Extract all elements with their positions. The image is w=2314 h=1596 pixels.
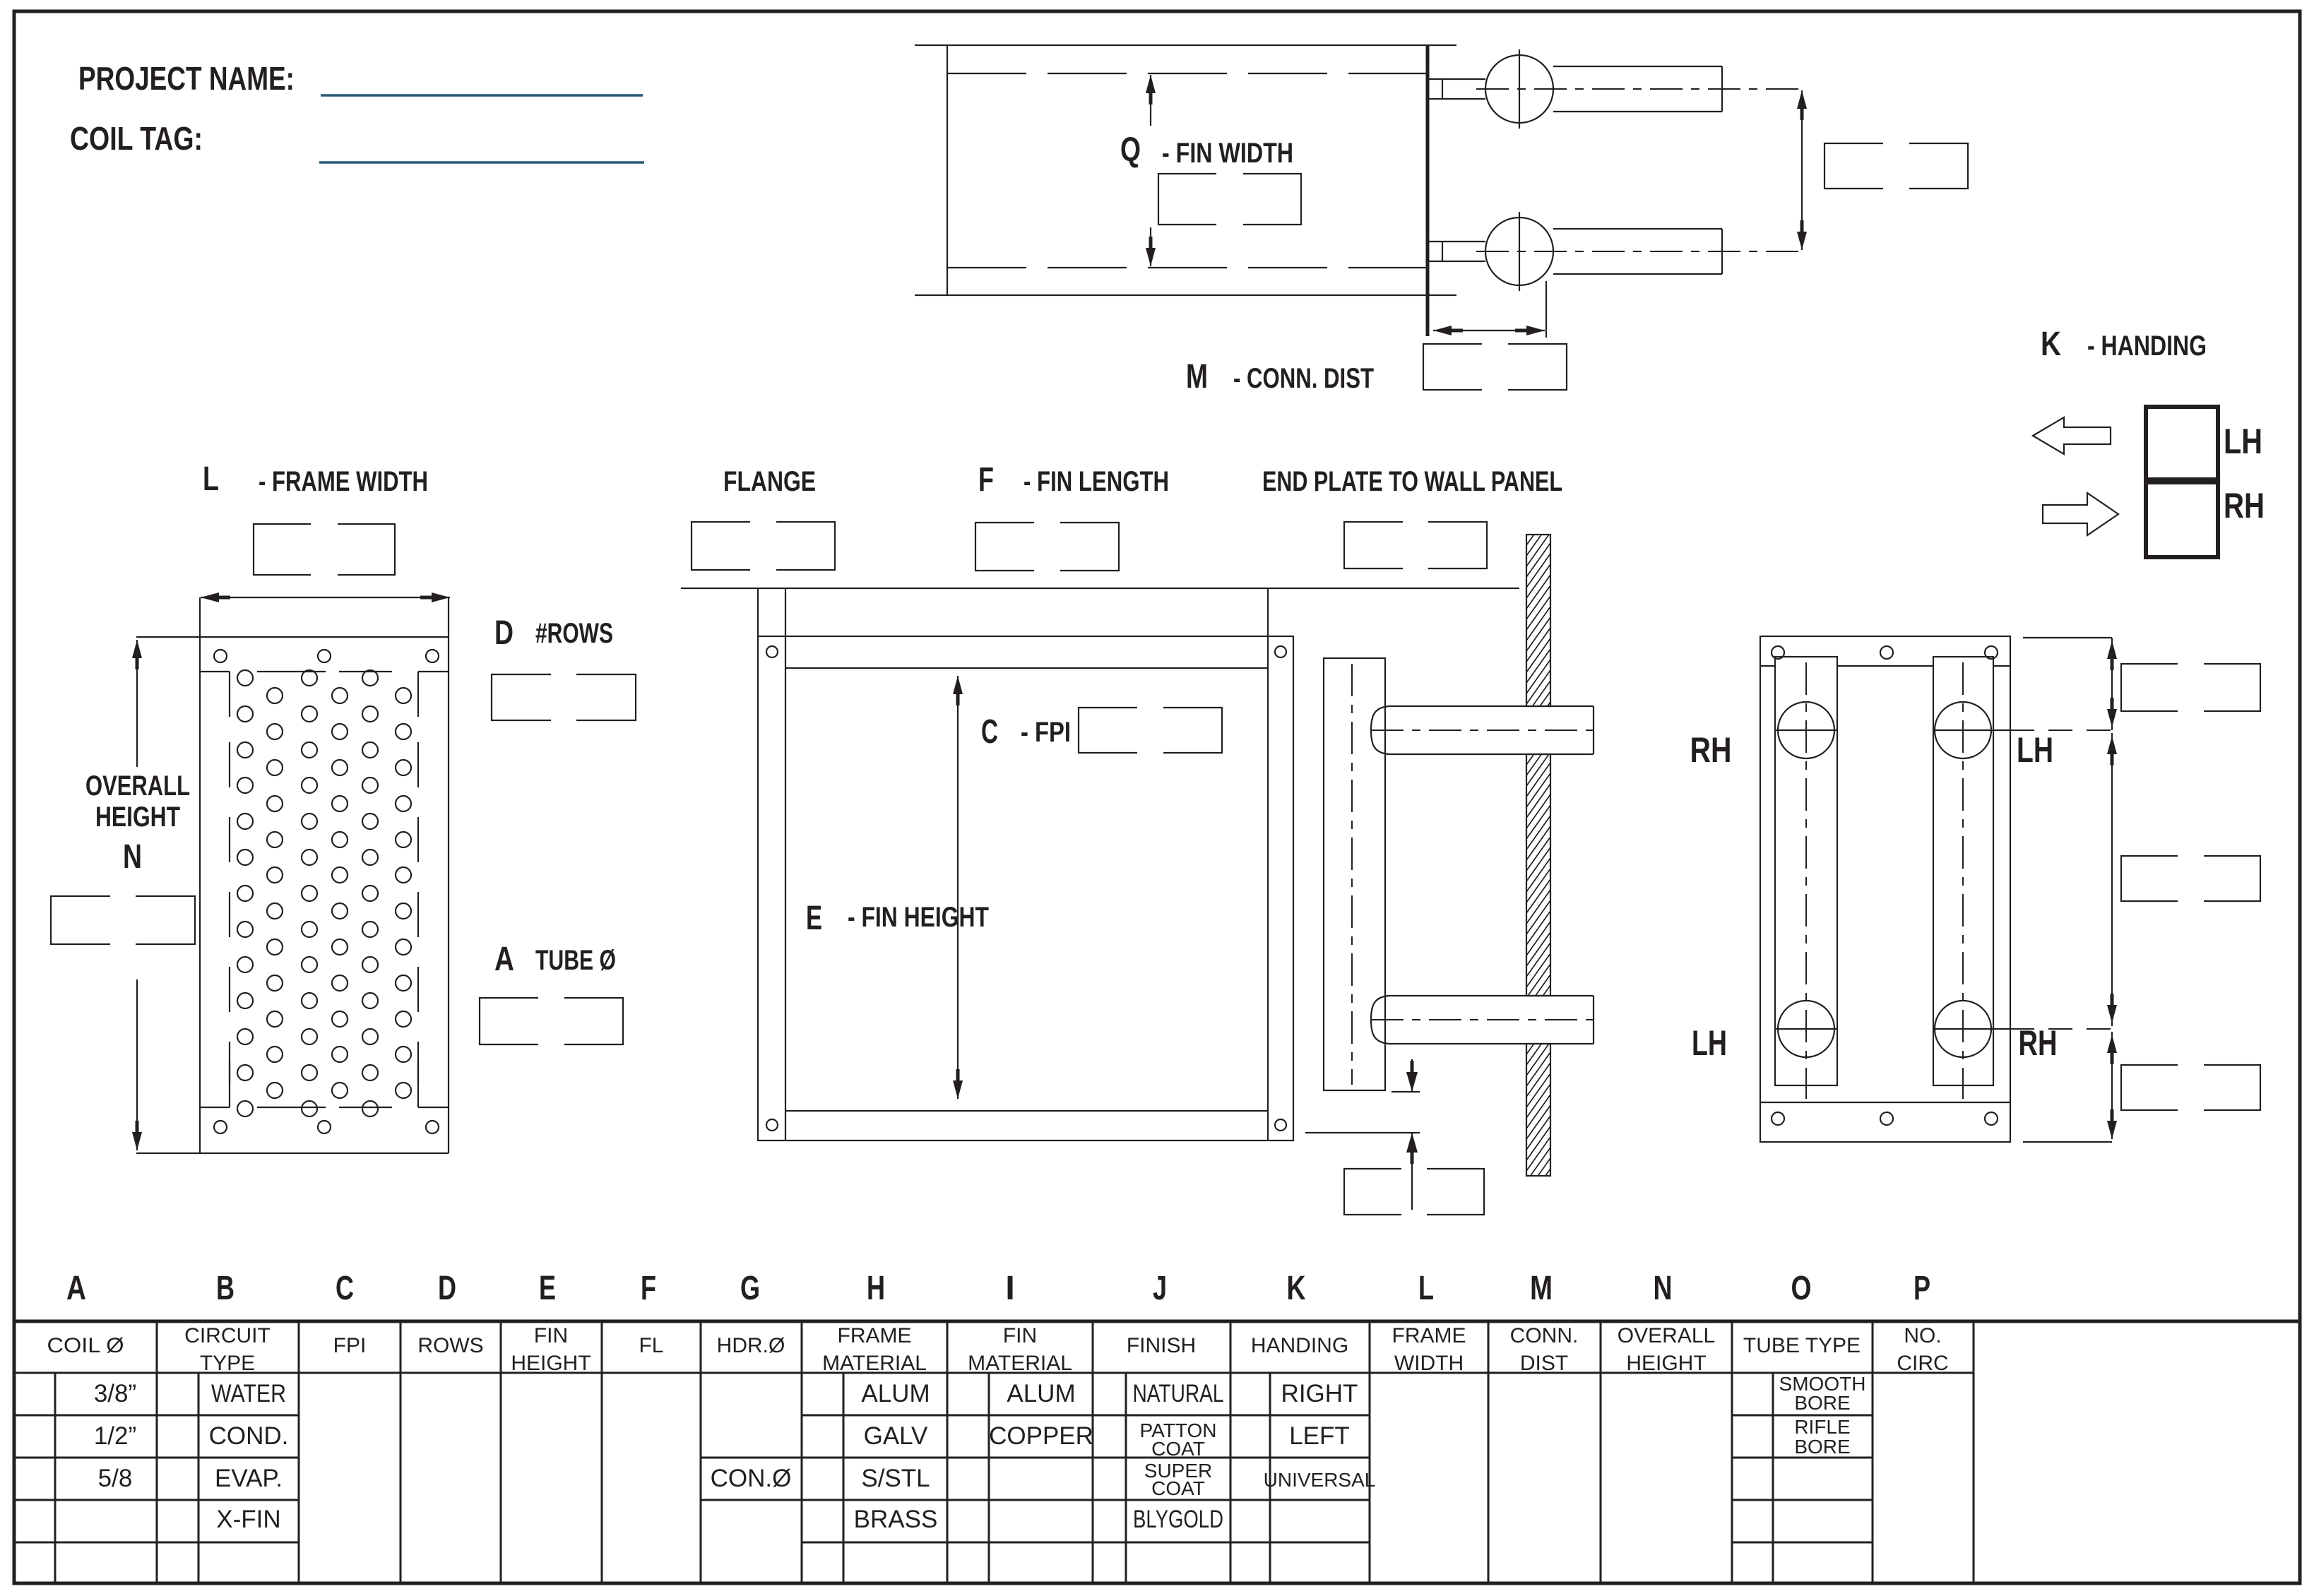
svg-text:COND.: COND. [209,1422,289,1450]
svg-text:- CONN. DIST: - CONN. DIST [1233,363,1374,394]
svg-text:RH: RH [2224,486,2265,525]
svg-text:COIL Ø: COIL Ø [47,1334,124,1357]
svg-text:- FPI: - FPI [1021,717,1071,748]
svg-text:RH: RH [1690,730,1732,770]
svg-text:FPI: FPI [333,1334,367,1357]
svg-text:D: D [438,1270,456,1307]
svg-text:N: N [1654,1270,1673,1307]
svg-text:FRAME: FRAME [1392,1324,1466,1347]
svg-text:- FIN HEIGHT: - FIN HEIGHT [848,902,989,933]
svg-text:P: P [1914,1270,1930,1307]
svg-text:CON.Ø: CON.Ø [711,1465,792,1492]
svg-text:- HANDING: - HANDING [2087,330,2207,362]
svg-text:FIN: FIN [1003,1324,1037,1347]
svg-text:NO.: NO. [1904,1324,1941,1347]
svg-text:C: C [981,713,998,751]
svg-text:ALUM: ALUM [1007,1380,1075,1407]
svg-text:FINISH: FINISH [1127,1334,1196,1357]
svg-text:B: B [216,1270,235,1307]
svg-text:HDR.Ø: HDR.Ø [717,1334,785,1357]
svg-text:A: A [66,1270,86,1307]
svg-text:WIDTH: WIDTH [1394,1352,1464,1375]
svg-text:F: F [978,461,994,499]
svg-text:F: F [641,1270,656,1307]
svg-text:C: C [336,1270,354,1307]
svg-text:EVAP.: EVAP. [215,1465,283,1492]
svg-text:MATERIAL: MATERIAL [822,1352,927,1375]
svg-text:N: N [123,838,142,876]
svg-text:BORE: BORE [1794,1392,1850,1414]
svg-text:BRASS: BRASS [854,1506,938,1533]
svg-text:PROJECT NAME:: PROJECT NAME: [78,60,295,97]
svg-text:FRAME: FRAME [838,1324,912,1347]
svg-text:HANDING: HANDING [1251,1334,1348,1357]
svg-text:- FIN WIDTH: - FIN WIDTH [1162,138,1293,169]
svg-text:L: L [203,460,219,498]
svg-text:GALV: GALV [864,1422,928,1450]
svg-text:WATER: WATER [211,1380,286,1407]
svg-text:K: K [1287,1270,1306,1307]
svg-text:COAT: COAT [1151,1438,1205,1460]
svg-text:LEFT: LEFT [1289,1422,1350,1450]
svg-text:TUBE TYPE: TUBE TYPE [1743,1334,1861,1357]
svg-text:L: L [1418,1270,1434,1307]
svg-text:S/STL: S/STL [861,1465,930,1492]
svg-text:J: J [1153,1270,1167,1307]
svg-text:COAT: COAT [1151,1477,1205,1499]
svg-text:LH: LH [2017,730,2053,770]
svg-text:HEIGHT: HEIGHT [95,802,180,833]
svg-text:OVERALL: OVERALL [85,770,190,802]
svg-text:CIRCUIT: CIRCUIT [184,1324,271,1347]
svg-text:BORE: BORE [1794,1436,1850,1458]
svg-text:K: K [2041,326,2061,363]
svg-text:LH: LH [2224,422,2262,461]
svg-text:END PLATE TO WALL PANEL: END PLATE TO WALL PANEL [1262,466,1562,497]
svg-text:CIRC: CIRC [1897,1352,1948,1375]
svg-text:G: G [740,1270,760,1307]
svg-text:FL: FL [639,1334,663,1357]
svg-text:D: D [494,614,514,652]
svg-text:FLANGE: FLANGE [723,466,816,497]
svg-text:- FIN LENGTH: - FIN LENGTH [1024,466,1169,497]
svg-text:HEIGHT: HEIGHT [511,1352,591,1375]
svg-text:E: E [806,900,822,937]
svg-text:COPPER: COPPER [989,1422,1093,1450]
svg-text:M: M [1530,1270,1553,1307]
svg-text:1/2”: 1/2” [94,1422,136,1450]
svg-text:M: M [1186,358,1208,395]
svg-text:#ROWS: #ROWS [535,618,613,649]
svg-text:CONN.: CONN. [1510,1324,1579,1347]
svg-text:O: O [1791,1270,1812,1307]
svg-text:A: A [494,941,514,978]
svg-text:OVERALL: OVERALL [1618,1324,1715,1347]
svg-text:I: I [1005,1270,1014,1307]
svg-text:NATURAL: NATURAL [1133,1380,1224,1407]
svg-text:5/8: 5/8 [98,1465,133,1492]
svg-text:RIFLE: RIFLE [1794,1416,1850,1438]
svg-text:X-FIN: X-FIN [216,1506,280,1533]
svg-text:TYPE: TYPE [200,1352,255,1375]
svg-text:RIGHT: RIGHT [1281,1380,1358,1407]
svg-text:E: E [539,1270,556,1307]
svg-text:BLYGOLD: BLYGOLD [1133,1506,1223,1533]
svg-text:3/8”: 3/8” [94,1380,136,1407]
svg-text:HEIGHT: HEIGHT [1626,1352,1706,1375]
svg-text:FIN: FIN [534,1324,568,1347]
svg-text:ALUM: ALUM [861,1380,930,1407]
svg-text:Q: Q [1120,131,1141,169]
svg-text:UNIVERSAL: UNIVERSAL [1264,1469,1376,1491]
svg-text:LH: LH [1692,1023,1727,1063]
svg-text:MATERIAL: MATERIAL [968,1352,1072,1375]
svg-text:TUBE Ø: TUBE Ø [535,945,616,976]
svg-text:H: H [867,1270,885,1307]
svg-text:DIST: DIST [1520,1352,1568,1375]
svg-text:COIL TAG:: COIL TAG: [70,120,203,157]
svg-text:ROWS: ROWS [417,1334,483,1357]
svg-text:- FRAME WIDTH: - FRAME WIDTH [259,466,428,497]
